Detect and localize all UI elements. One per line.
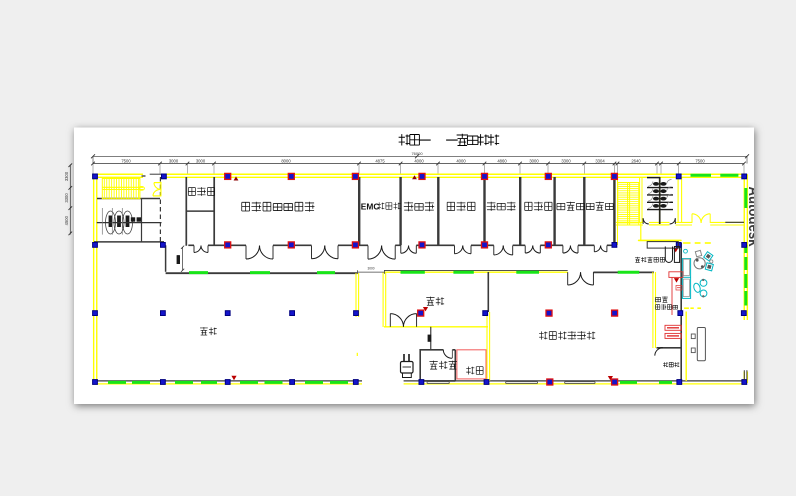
svg-text:3300: 3300 — [64, 193, 69, 203]
svg-text:3000: 3000 — [529, 158, 539, 163]
svg-text:3000: 3000 — [169, 158, 179, 163]
svg-text:3000: 3000 — [196, 158, 206, 163]
svg-text:EMC: EMC — [361, 202, 380, 212]
svg-text:4860: 4860 — [497, 158, 507, 163]
svg-text:4500: 4500 — [64, 215, 69, 225]
svg-text:3300: 3300 — [64, 171, 69, 181]
svg-text:3000: 3000 — [367, 267, 374, 271]
svg-text:7500: 7500 — [121, 158, 131, 163]
svg-text:2640: 2640 — [631, 158, 641, 163]
svg-text:8000: 8000 — [281, 158, 291, 163]
svg-text:3304: 3304 — [595, 158, 605, 163]
svg-text:4875: 4875 — [375, 158, 385, 163]
svg-text:76000: 76000 — [411, 151, 423, 156]
svg-text:3300: 3300 — [561, 158, 571, 163]
svg-text:4000: 4000 — [456, 158, 466, 163]
svg-text:7500: 7500 — [695, 158, 705, 163]
svg-text:4000: 4000 — [414, 158, 424, 163]
